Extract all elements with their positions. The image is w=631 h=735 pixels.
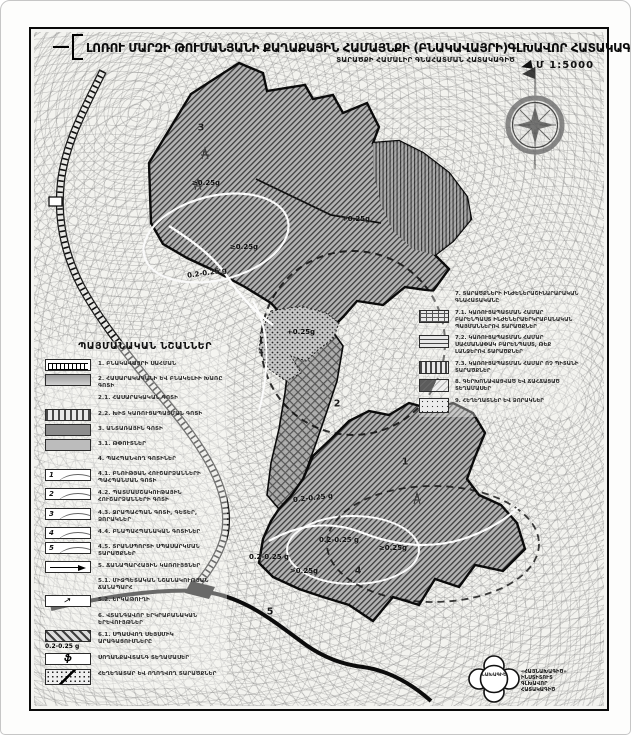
- legend-item-label: ՍՈՂԱՆՔԱՎՏԱՆԳ ՏԵՂԱՄԱՍԵՐ: [98, 653, 189, 662]
- assessment-item-label: 7. ՏԱՐԱԾՔՆԵՐԻ ԻՆԺԵՆԵՐԱՇԻՆԱՐԱՐԱԿԱՆ ԳՆԱՀԱՏ…: [455, 291, 581, 305]
- legend-swatch-zone-2: 2: [45, 488, 91, 500]
- legend-swatch-forest-zone: [45, 424, 91, 436]
- map-zone-number: 4: [355, 566, 362, 577]
- legend-swatch-spacer: [45, 611, 91, 623]
- zone-box-number: 2: [49, 490, 54, 498]
- legend-item-label: 4.3. ՋՐԱՊԱՀՊԱՆ ԳՈՏԻ, ԳԵՏԵՐ, ՁՈՐԱԿՆԵՐ: [98, 508, 227, 524]
- legend-item-label: ՀԵՂԵՂԱՏԱՐ ԵՎ ՈՂՈՂՎՈՂ ՏԱՐԱԾՔՆԵՐ: [98, 669, 217, 678]
- stamp-center-text: ՆԱԽԱԳԻԾ: [472, 673, 516, 678]
- assessment-swatch-spacer: [419, 291, 449, 293]
- zone-box-number: 5: [49, 544, 54, 552]
- legend-item-label: 6. ՎՏԱՆԳԱՎՈՐ ԵՐԿՐԱԲԱՆԱԿԱՆ ԵՐԵՎՈՒՅԹՆԵՐ: [98, 611, 227, 627]
- assessment-item: 7.2. ԿԱՌՈՒՑԱՊԱՏՄԱՆ ՀԱՄԱՐ ՍԱՀՄԱՆԱՓԱԿ ԲԱՐԵ…: [419, 335, 581, 356]
- legend-item: 3. ԱՆՏԱՌԱՅԻՆ ԳՈՏԻ: [45, 424, 227, 436]
- legend-swatch-zone-3: 3: [45, 508, 91, 520]
- legend-item: ֆ ՍՈՂԱՆՔԱՎՏԱՆԳ ՏԵՂԱՄԱՍԵՐ: [45, 653, 227, 665]
- legend-item-label: 4. ՊԱՀՊԱՆՎՈՂ ԳՈՏԻՆԵՐ: [98, 454, 176, 463]
- legend-item: 0.2-0.25 g 6.1. ՍՊԱՍՎՈՂ ՍԵՅՍՄԻԿ ԱՐԱԳԱՑՈՒ…: [45, 630, 227, 651]
- legend-item: 4. ՊԱՀՊԱՆՎՈՂ ԳՈՏԻՆԵՐ: [45, 454, 227, 466]
- legend-item: → 5.2. ԵՐԿԱԹՈՒՂԻ: [45, 595, 227, 607]
- scale-block: Մ 1:5000: [521, 60, 594, 71]
- assessment-item: 9. ՀԵՂԵՂԱՏՆԵՐ ԵՎ ՁՈՐԱԿՆԵՐ: [419, 398, 581, 413]
- seismic-acceleration-caption: 0.2-0.25 g: [45, 643, 79, 650]
- map-title: ԼՈՌՈՒ ՄԱՐԶԻ ԹՈՒՄԱՆՅԱՆԻ ՔԱՂԱՔԱՅԻՆ ՀԱՄԱՅՆՔ…: [86, 40, 631, 55]
- landslide-symbol: ֆ: [64, 654, 72, 664]
- map-acceleration-label: ≥0.25g: [379, 544, 407, 552]
- map-zone-number: 2: [334, 399, 341, 410]
- assessment-item: 7.1. ԿԱՌՈՒՑԱՊԱՏՄԱՆ ՀԱՄԱՐ ԲԱՐԵՆՊԱՍՏ ԻՆԺԵՆ…: [419, 310, 581, 331]
- assessment-item-label: 9. ՀԵՂԵՂԱՏՆԵՐ ԵՎ ՁՈՐԱԿՆԵՐ: [455, 398, 544, 405]
- assessment-item: 7. ՏԱՐԱԾՔՆԵՐԻ ԻՆԺԵՆԵՐԱՇԻՆԱՐԱՐԱԿԱՆ ԳՆԱՀԱՏ…: [419, 291, 581, 305]
- legend-item: 3 4.3. ՋՐԱՊԱՀՊԱՆ ԳՈՏԻ, ԳԵՏԵՐ, ՁՈՐԱԿՆԵՐ: [45, 508, 227, 524]
- legend-title: ՊԱՅՄԱՆԱԿԱՆ ՆՇԱՆՆԵՐ: [63, 341, 227, 352]
- legend-item-label: 3.1. ԹՓՈՒՏՆԵՐ: [98, 439, 146, 448]
- assessment-swatch-waterlogged: [419, 379, 449, 392]
- legend-item: 5. ՃԱՆԱՊԱՐՀԱՅԻՆ ԿԱՌՈՒՅՑՆԵՐ: [45, 561, 227, 573]
- map-acceleration-label: 0.2-0.25 g: [319, 536, 359, 544]
- scale-label: Մ 1:5000: [536, 60, 594, 71]
- legend-item-label: 5.2. ԵՐԿԱԹՈՒՂԻ: [98, 595, 150, 604]
- legend-item: 2. ՀԱՍԱՐԱԿԱԿԱՆԻ ԵՎ ԲՆԱԿԵԼԻԻ ԽԱՌԸ ԳՈՏԻ: [45, 374, 227, 390]
- map-acceleration-label: +0.25g: [342, 215, 370, 223]
- legend-panel: ՊԱՅՄԱՆԱԿԱՆ ՆՇԱՆՆԵՐ 1. ԲՆԱԿԱՎԱՅՐԻ ՍԱՀՄԱՆ …: [45, 341, 227, 688]
- legend-item-label: 5.1. ՄԻՋՊԵՏԱԿԱՆ ՆՇԱՆԱԿՈՒԹՅԱՆ ՃԱՆԱՊԱՐՀ: [98, 576, 227, 592]
- legend-swatch-zone-1: 1: [45, 469, 91, 481]
- legend-swatch-spacer: [45, 393, 91, 405]
- legend-swatch-settlement-boundary: [45, 359, 91, 371]
- legend-swatch-flood-area: [45, 669, 91, 685]
- legend-item: 1 4.1. ԲՆՈՒԹՅԱՆ ՀՈՒՇԱՐՁԱՆՆԵՐԻ ՊԱՀՊԱՆՄԱՆ …: [45, 469, 227, 485]
- map-zone-number: 3: [198, 123, 205, 134]
- legend-swatch-road-arrow: [45, 561, 91, 573]
- legend-item: 5 4.5. ՏՐԱՆՍՊՈՐՏԻ ՍՊԱՍԱՐԿՄԱՆ ՏԱՐԱԾՔՆԵՐ: [45, 542, 227, 558]
- map-zone-number: 5: [267, 607, 274, 618]
- legend-swatch-railway-sign: →: [45, 595, 91, 607]
- assessment-item-label: 7.2. ԿԱՌՈՒՑԱՊԱՏՄԱՆ ՀԱՄԱՐ ՍԱՀՄԱՆԱՓԱԿ ԲԱՐԵ…: [455, 335, 581, 356]
- legend-item-label: 4.4. ԲՆԱՊԱՀՊԱՆԱԿԱՆ ԳՈՏԻՆԵՐ: [98, 527, 200, 536]
- legend-swatch-zone-4: 4: [45, 527, 91, 539]
- legend-item-label: 3. ԱՆՏԱՌԱՅԻՆ ԳՈՏԻ: [98, 424, 163, 433]
- north-flag-icon: [520, 60, 533, 71]
- legend-item-label: 4.1. ԲՆՈՒԹՅԱՆ ՀՈՒՇԱՐՁԱՆՆԵՐԻ ՊԱՀՊԱՆՄԱՆ ԳՈ…: [98, 469, 227, 485]
- map-acceleration-label: >0.25g: [290, 567, 318, 575]
- assessment-item: 7.3. ԿԱՌՈՒՑԱՊԱՏՄԱՆ ՀԱՄԱՐ ՈՉ ՊԻՏԱՆԻ ՏԱՐԱԾ…: [419, 361, 581, 375]
- legend-swatch-zone-5: 5: [45, 542, 91, 554]
- stamp-side-text: «ՀԱՅՆԱԽԱԳԻԾ» ԻՆՍՏԻՏՈՒՏ ԳԼԽԱՎՈՐ ՀԱՏԱԿԱԳԻԾ: [521, 669, 583, 693]
- zone-box-number: 3: [49, 510, 54, 518]
- stamp-side-line2: ԳԼԽԱՎՈՐ ՀԱՏԱԿԱԳԻԾ: [521, 681, 583, 693]
- legend-swatch-spacer: [45, 454, 91, 466]
- legend-item: 2.2. ԽԻՏ ԿԱՌՈՒՑԱՊԱՏՄԱՆ ԳՈՏԻ: [45, 409, 227, 421]
- legend-item-label: 2. ՀԱՍԱՐԱԿԱԿԱՆԻ ԵՎ ԲՆԱԿԵԼԻԻ ԽԱՌԸ ԳՈՏԻ: [98, 374, 227, 390]
- legend-swatch-mixed-zone: [45, 374, 91, 386]
- legend-item: 2 4.2. ՊԱՏՄԱՄՇԱԿՈՒԹԱՅԻՆ ՀՈՒՇԱՐՁԱՆՆԵՐԻ ԳՈ…: [45, 488, 227, 504]
- arrow-icon: →: [62, 595, 74, 607]
- legend-item: 2.1. ՀԱՍԱՐԱԿԱԿԱՆ ԳՈՏԻ: [45, 393, 227, 405]
- legend-item-label: 2.1. ՀԱՍԱՐԱԿԱԿԱՆ ԳՈՏԻ: [98, 393, 178, 402]
- assessment-item-label: 7.3. ԿԱՌՈՒՑԱՊԱՏՄԱՆ ՀԱՄԱՐ ՈՉ ՊԻՏԱՆԻ ՏԱՐԱԾ…: [455, 361, 581, 375]
- map-acceleration-label: +0.25g: [287, 328, 315, 336]
- map-acceleration-label: ≥0.25g: [230, 243, 258, 251]
- legend-item-label: 2.2. ԽԻՏ ԿԱՌՈՒՑԱՊԱՏՄԱՆ ԳՈՏԻ: [98, 409, 202, 418]
- map-acceleration-label: 0.2-0.25 g: [249, 553, 289, 561]
- map-zone-number: 1: [402, 457, 409, 468]
- legend-swatch-shrubs: [45, 439, 91, 451]
- assessment-item: 8. ԳԵՐԽՈՆԱՎԱՑՎԱԾ ԵՎ ՃԱՀՃԱՑԱԾ ՏԵՂԱՄԱՍԵՐ: [419, 379, 581, 393]
- title-left-bracket: [72, 34, 83, 60]
- legend-item-label: 4.2. ՊԱՏՄԱՄՇԱԿՈՒԹԱՅԻՆ ՀՈՒՇԱՐՁԱՆՆԵՐԻ ԳՈՏԻ: [98, 488, 227, 504]
- legend-item-label: 6.1. ՍՊԱՍՎՈՂ ՍԵՅՍՄԻԿ ԱՐԱԳԱՑՈՒՄՆԵՐԸ: [98, 630, 227, 646]
- legend-item-label: 1. ԲՆԱԿԱՎԱՅՐԻ ՍԱՀՄԱՆ: [98, 359, 176, 368]
- legend-item-label: 5. ՃԱՆԱՊԱՐՀԱՅԻՆ ԿԱՌՈՒՅՑՆԵՐ: [98, 561, 200, 570]
- legend-item-label: 4.5. ՏՐԱՆՍՊՈՐՏԻ ՍՊԱՍԱՐԿՄԱՆ ՏԱՐԱԾՔՆԵՐ: [98, 542, 227, 558]
- legend-swatch-spacer: [45, 576, 91, 588]
- legend-item: 5.1. ՄԻՋՊԵՏԱԿԱՆ ՆՇԱՆԱԿՈՒԹՅԱՆ ՃԱՆԱՊԱՐՀ: [45, 576, 227, 592]
- legend-swatch-landslide: ֆ: [45, 653, 91, 665]
- legend-item: 4 4.4. ԲՆԱՊԱՀՊԱՆԱԿԱՆ ԳՈՏԻՆԵՐ: [45, 527, 227, 539]
- assessment-item-label: 7.1. ԿԱՌՈՒՑԱՊԱՏՄԱՆ ՀԱՄԱՐ ԲԱՐԵՆՊԱՍՏ ԻՆԺԵՆ…: [455, 310, 581, 331]
- title-rule: [53, 46, 69, 48]
- assessment-swatch-favorable: [419, 310, 449, 323]
- zone-box-number: 1: [49, 471, 54, 479]
- assessment-swatch-unsuitable: [419, 361, 449, 374]
- scanned-map-page: ԼՈՌՈՒ ՄԱՐԶԻ ԹՈՒՄԱՆՅԱՆԻ ՔԱՂԱՔԱՅԻՆ ՀԱՄԱՅՆՔ…: [0, 0, 631, 735]
- legend-item: 3.1. ԹՓՈՒՏՆԵՐ: [45, 439, 227, 451]
- legend-item: 6. ՎՏԱՆԳԱՎՈՐ ԵՐԿՐԱԲԱՆԱԿԱՆ ԵՐԵՎՈՒՅԹՆԵՐ: [45, 611, 227, 627]
- legend-swatch-dense-buildup: [45, 409, 91, 421]
- assessment-swatch-limited: [419, 335, 449, 348]
- map-subtitle: ՏԱՐԱԾՔԻ ՀԱՄԱԼԻՐ ԳՆԱՀԱՏՄԱՆ ՀԱՏԱԿԱԳԻԾ: [299, 56, 515, 64]
- assessment-panel: 7. ՏԱՐԱԾՔՆԵՐԻ ԻՆԺԵՆԵՐԱՇԻՆԱՐԱՐԱԿԱՆ ԳՆԱՀԱՏ…: [419, 291, 581, 417]
- legend-item: ՀԵՂԵՂԱՏԱՐ ԵՎ ՈՂՈՂՎՈՂ ՏԱՐԱԾՔՆԵՐ: [45, 669, 227, 685]
- assessment-item-label: 8. ԳԵՐԽՈՆԱՎԱՑՎԱԾ ԵՎ ՃԱՀՃԱՑԱԾ ՏԵՂԱՄԱՍԵՐ: [455, 379, 581, 393]
- stamp-side-line1: «ՀԱՅՆԱԽԱԳԻԾ» ԻՆՍՏԻՏՈՒՏ: [521, 669, 583, 681]
- assessment-swatch-ravines: [419, 398, 449, 413]
- zone-box-number: 4: [49, 529, 54, 537]
- map-acceleration-label: ≥0.25g: [192, 179, 220, 187]
- legend-item: 1. ԲՆԱԿԱՎԱՅՐԻ ՍԱՀՄԱՆ: [45, 359, 227, 371]
- legend-swatch-seismic-acceleration: [45, 630, 91, 642]
